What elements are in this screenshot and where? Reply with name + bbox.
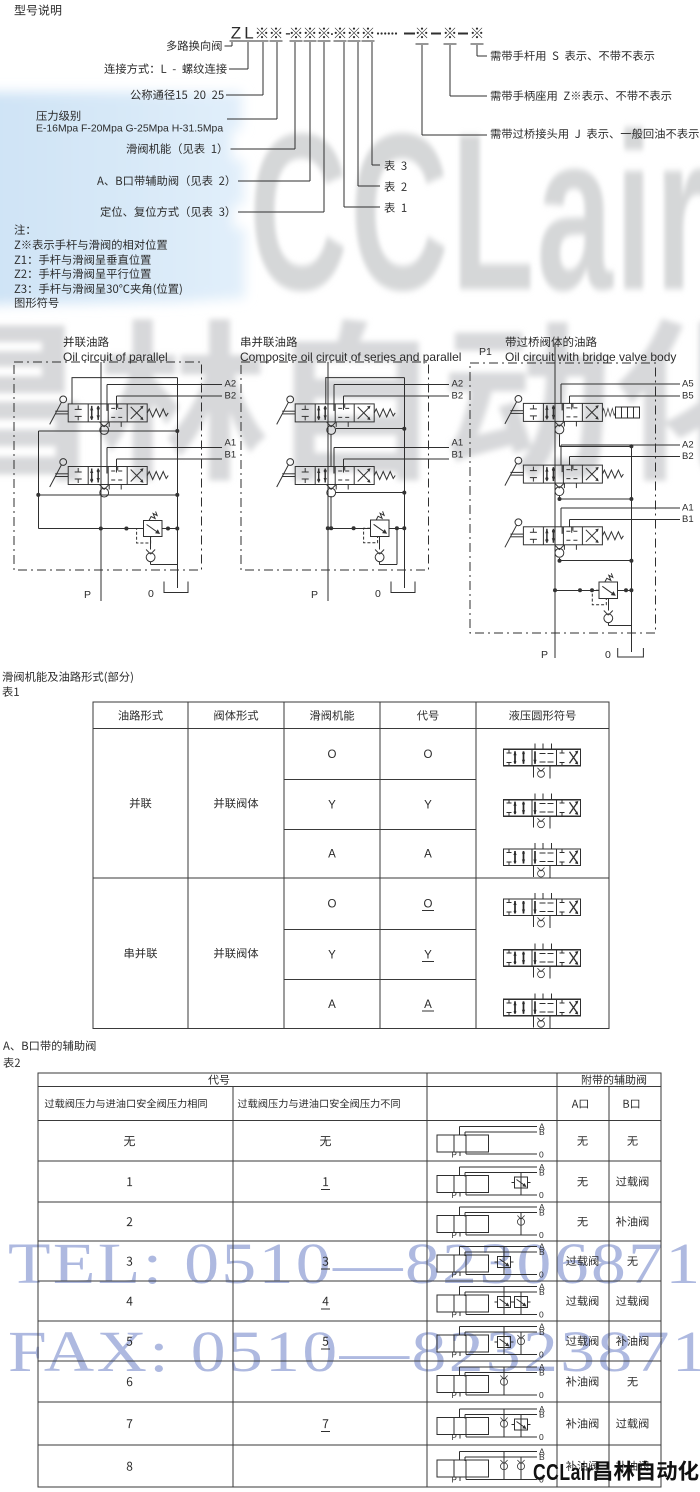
svg-text:0: 0 bbox=[539, 1190, 544, 1200]
svg-text:P: P bbox=[452, 1311, 457, 1320]
svg-text:0: 0 bbox=[539, 1230, 544, 1240]
svg-text:A: A bbox=[328, 849, 336, 861]
svg-text:B: B bbox=[539, 1368, 545, 1378]
svg-text:A2: A2 bbox=[225, 379, 237, 390]
svg-text:0: 0 bbox=[539, 1269, 544, 1279]
svg-text:B2: B2 bbox=[682, 451, 694, 462]
svg-text:B2: B2 bbox=[225, 391, 237, 402]
svg-text:A2: A2 bbox=[682, 440, 694, 451]
svg-text:P: P bbox=[452, 1150, 457, 1159]
svg-text:P: P bbox=[452, 1231, 457, 1240]
svg-text:A: A bbox=[424, 849, 432, 861]
svg-text:P: P bbox=[311, 589, 318, 601]
svg-text:P: P bbox=[541, 649, 548, 661]
svg-text:B5: B5 bbox=[682, 391, 694, 402]
svg-text:·: · bbox=[329, 24, 335, 43]
svg-text:P: P bbox=[84, 589, 91, 601]
svg-text:B1: B1 bbox=[452, 450, 464, 461]
svg-text:B: B bbox=[539, 1247, 545, 1257]
svg-text:O: O bbox=[328, 749, 337, 761]
svg-text:P: P bbox=[452, 1271, 457, 1280]
svg-text:0: 0 bbox=[539, 1349, 544, 1359]
svg-text:B1: B1 bbox=[682, 514, 694, 525]
svg-text:O: O bbox=[424, 899, 433, 911]
svg-text:FAX: 0510—82323871: FAX: 0510—82323871 bbox=[8, 1319, 700, 1383]
svg-text:B: B bbox=[539, 1168, 545, 1178]
svg-text:A1: A1 bbox=[225, 438, 237, 449]
svg-text:A: A bbox=[328, 999, 336, 1011]
svg-text:O: O bbox=[328, 899, 337, 911]
svg-text:CCLair: CCLair bbox=[533, 1460, 593, 1486]
svg-text:B: B bbox=[539, 1287, 545, 1297]
svg-text:P: P bbox=[452, 1433, 457, 1442]
svg-text:L: L bbox=[244, 24, 253, 43]
svg-text:Z: Z bbox=[231, 24, 241, 43]
svg-text:Y: Y bbox=[424, 799, 432, 811]
svg-text:Y: Y bbox=[424, 949, 432, 961]
svg-text:B2: B2 bbox=[452, 391, 464, 402]
svg-text:0: 0 bbox=[148, 588, 154, 600]
svg-text:P: P bbox=[452, 1476, 457, 1485]
svg-text:P: P bbox=[452, 1191, 457, 1200]
svg-text:B: B bbox=[539, 1127, 545, 1137]
svg-text:P: P bbox=[452, 1351, 457, 1360]
svg-text:0: 0 bbox=[539, 1390, 544, 1400]
svg-text:P: P bbox=[452, 1391, 457, 1400]
svg-text:Y: Y bbox=[328, 949, 336, 961]
svg-text:B1: B1 bbox=[225, 450, 237, 461]
svg-text:Y: Y bbox=[328, 799, 336, 811]
svg-text:A2: A2 bbox=[452, 379, 464, 390]
svg-text:A: A bbox=[424, 999, 432, 1011]
svg-text:O: O bbox=[424, 749, 433, 761]
svg-text:0: 0 bbox=[539, 1432, 544, 1442]
svg-text:A5: A5 bbox=[682, 378, 694, 389]
svg-text:E-16Mpa F-20Mpa G-25Mpa H-31.5: E-16Mpa F-20Mpa G-25Mpa H-31.5Mpa bbox=[36, 124, 223, 135]
svg-text:A1: A1 bbox=[452, 438, 464, 449]
svg-text:0: 0 bbox=[539, 1309, 544, 1319]
svg-text:Oil circuit with bridge valve: Oil circuit with bridge valve body bbox=[505, 350, 676, 364]
svg-text:B: B bbox=[539, 1208, 545, 1218]
svg-text:0: 0 bbox=[375, 588, 381, 600]
svg-text:0: 0 bbox=[539, 1149, 544, 1159]
svg-text:B: B bbox=[539, 1327, 545, 1337]
svg-text:0: 0 bbox=[605, 649, 611, 661]
svg-text:P1: P1 bbox=[479, 346, 492, 358]
svg-text:-: - bbox=[285, 24, 291, 43]
svg-text:A1: A1 bbox=[682, 503, 694, 514]
svg-text:B: B bbox=[539, 1410, 545, 1420]
